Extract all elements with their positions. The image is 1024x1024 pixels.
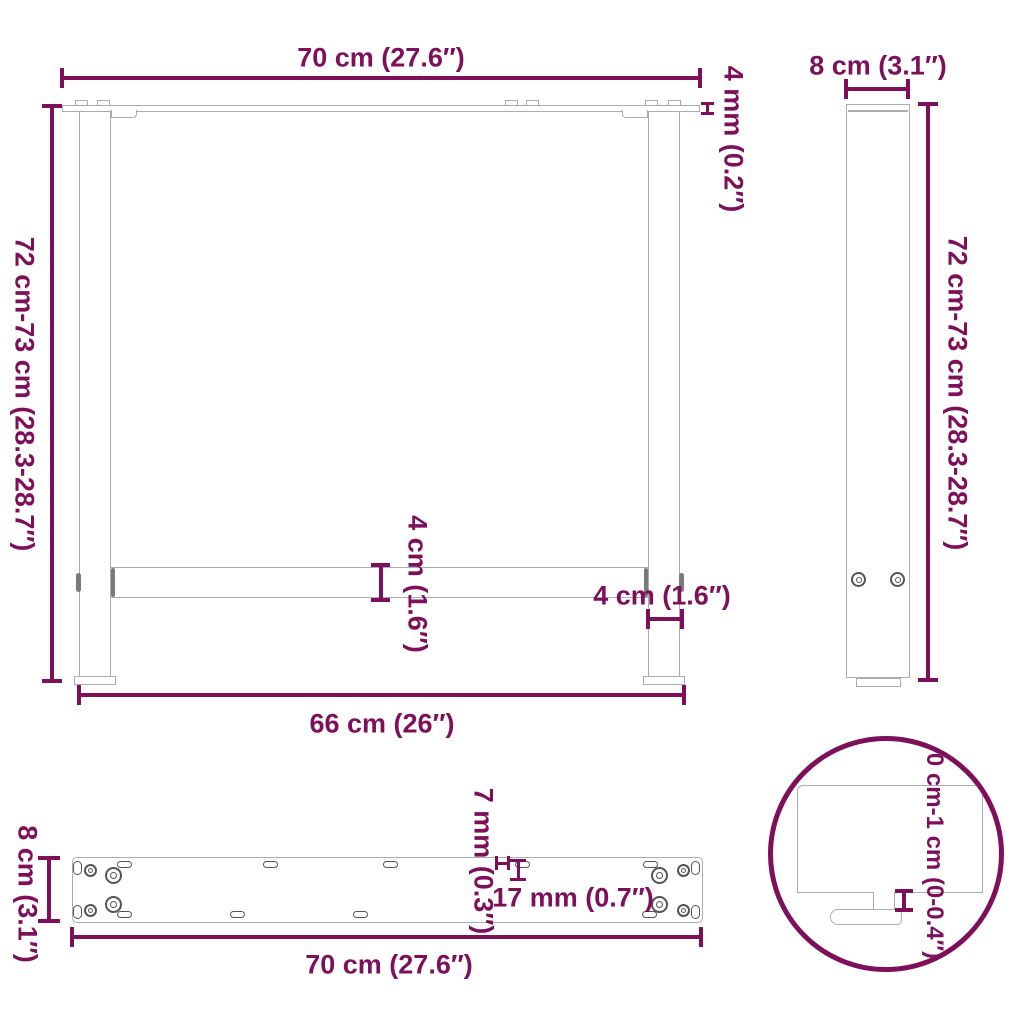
side-height-label: 72 cm-73 cm (28.3-28.7″) (944, 236, 971, 551)
dimension-diagram: 70 cm (27.6″) 4 mm (0.2″) 72 cm-73 cm (2… (0, 0, 1024, 1024)
side-screw-hole (851, 572, 866, 587)
front-top-dimension-line (62, 76, 700, 80)
plate-thickness-label: 4 mm (0.2″) (720, 66, 747, 212)
detail-circle: 0 cm-1 cm (0-0.4″) (768, 736, 1004, 972)
front-top-dimension-tick-left (60, 68, 64, 88)
screw-hole (677, 904, 690, 917)
side-plate-edge-line (848, 110, 908, 112)
bracket-tab-right (622, 110, 648, 118)
side-width-tick-right (906, 79, 910, 99)
front-height-tick-bottom (42, 679, 62, 683)
oblong-slot (230, 911, 245, 918)
hole-width-bar (497, 862, 510, 865)
hole-length-bar (517, 861, 520, 880)
detail-range-label: 0 cm-1 cm (0-0.4″) (922, 753, 946, 959)
oblong-slot (263, 861, 278, 868)
left-leg (79, 111, 111, 677)
top-depth-bar (47, 858, 51, 923)
front-height-dimension-line (50, 106, 54, 683)
crossbar-end-cap-left (111, 568, 115, 597)
left-leg-side-slot (76, 573, 81, 592)
front-bottom-tick-left (77, 685, 81, 705)
oblong-slot (643, 861, 658, 868)
oblong-slot (353, 911, 368, 918)
oblong-slot (383, 861, 398, 868)
side-height-dimension-line (926, 104, 930, 682)
vertical-slot (73, 861, 82, 875)
right-foot (643, 676, 685, 685)
side-width-label: 8 cm (3.1″) (809, 53, 947, 80)
oblong-slot (117, 861, 132, 868)
front-top-width-label: 70 cm (27.6″) (297, 45, 465, 72)
side-width-dimension-line (846, 87, 910, 91)
side-screw-hole (890, 572, 905, 587)
side-foot (856, 678, 901, 687)
top-width-tick-left (70, 927, 74, 947)
vertical-slot (691, 905, 700, 919)
leg-width-tick-left (646, 609, 650, 629)
mounting-plate (62, 105, 700, 112)
screw-hole-large (105, 867, 122, 884)
front-top-dimension-tick-right (698, 68, 702, 88)
crossbar-height-label: 4 cm (1.6″) (404, 515, 431, 653)
leg-width-tick-right (680, 609, 684, 629)
top-width-label: 70 cm (27.6″) (305, 952, 473, 979)
leg-width-bar (648, 617, 682, 621)
vertical-slot (691, 861, 700, 875)
front-height-tick-top (42, 104, 62, 108)
screw-hole (677, 864, 690, 877)
plate-thickness-bar (706, 102, 709, 115)
side-width-tick-left (844, 79, 848, 99)
screw-hole (84, 904, 97, 917)
screw-hole (84, 864, 97, 877)
top-width-tick-right (699, 927, 703, 947)
vertical-slot (73, 905, 82, 919)
front-height-label: 72 cm-73 cm (28.3-28.7″) (11, 237, 38, 552)
front-bottom-width-label: 66 cm (26″) (309, 711, 454, 738)
side-height-tick-top (918, 102, 938, 106)
detail-foot-pad (830, 909, 902, 925)
detail-range-bar (902, 889, 906, 912)
top-depth-label: 8 cm (3.1″) (14, 825, 41, 963)
hole-length-label: 17 mm (0.7″) (492, 885, 654, 912)
side-height-tick-bottom (918, 678, 938, 682)
crossbar-height-bar (379, 563, 383, 602)
detail-foot-stem (873, 892, 895, 910)
front-bottom-dimension-line (79, 693, 684, 697)
screw-hole-large (651, 867, 668, 884)
left-foot (74, 676, 116, 685)
leg-width-label: 4 cm (1.6″) (593, 583, 731, 610)
bracket-tab-left (111, 110, 137, 118)
top-width-dimension-line (72, 935, 703, 939)
detail-leg-bottom (797, 785, 983, 893)
front-bottom-tick-right (682, 685, 686, 705)
side-leg-profile (846, 104, 910, 678)
oblong-slot (117, 911, 132, 918)
